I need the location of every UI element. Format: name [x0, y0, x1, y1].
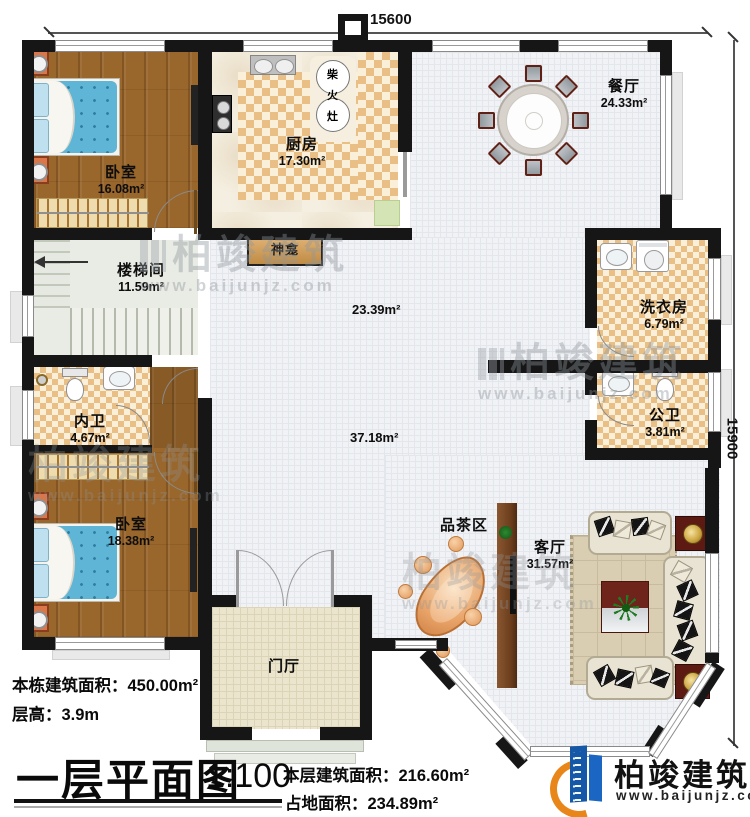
shrine-label: 神龛: [252, 243, 318, 258]
stair-direction-line: [44, 261, 88, 263]
entry-door-leaf-right: [331, 550, 334, 607]
wall-laundry-north: [585, 228, 720, 240]
wall-entry-north-e: [331, 595, 372, 607]
room-label-bedroom1: 卧室16.08m²: [86, 165, 156, 196]
wall-pbath-west-a: [585, 373, 597, 395]
room-label-kitchen: 厨房17.30m²: [266, 137, 338, 168]
cushion: [677, 620, 699, 642]
kitchen-tile-strip: [358, 52, 398, 200]
cushion: [671, 639, 694, 662]
sofa-top: [588, 511, 672, 555]
wall-laundry-west: [585, 240, 597, 328]
room-label-tea-area: 品茶区: [430, 518, 498, 535]
plant-center: [622, 604, 630, 612]
window-bedroom1-north: [55, 40, 165, 52]
building-total-area: 本栋建筑面积：450.00m²: [12, 672, 198, 696]
window-laundry-east: [708, 258, 721, 320]
toilet-bowl: [66, 378, 84, 401]
wall-pbath-west-b: [585, 420, 597, 448]
dimension-top-value: 15600: [370, 11, 412, 28]
tea-stool: [448, 536, 464, 552]
dining-chair: [572, 112, 589, 129]
room-label-public-bath: 公卫3.81m²: [630, 408, 700, 439]
sill-laundry-east: [721, 255, 732, 325]
burner-icon: [217, 101, 230, 114]
bed: [26, 78, 120, 156]
tea-stool: [398, 584, 413, 599]
floor-area: 本层建筑面积：216.60m²: [283, 762, 469, 786]
room-label-laundry: 洗衣房6.79m²: [628, 300, 700, 331]
wall-mid-stub: [488, 360, 708, 373]
sofa-bottom: [586, 656, 674, 700]
washer-panel: [639, 243, 667, 247]
cushion: [650, 668, 671, 689]
plan-scale: 1:100: [206, 757, 291, 796]
cushion: [673, 600, 694, 621]
title-underline-main: [14, 799, 282, 803]
stair-treads: [70, 308, 198, 355]
wall-entry-north-w: [200, 595, 238, 607]
chimney-flue: [345, 21, 361, 35]
window-bedroom2-south: [55, 637, 165, 650]
wall-entry-east: [360, 595, 372, 740]
dining-table: [497, 84, 569, 156]
firewood-stove-char: 灶: [327, 108, 338, 124]
wall-bedroom1-east: [198, 40, 212, 240]
toilet: [62, 368, 88, 377]
window-living-east: [705, 553, 719, 653]
entry-door-leaf-left: [236, 550, 239, 607]
floor-plan: 柴 火 灶 神龛: [0, 0, 750, 817]
door-leaf-bedroom2: [194, 450, 197, 494]
wall-innerbath-south: [22, 445, 152, 453]
room-label-bedroom2: 卧室18.38m²: [96, 517, 166, 548]
kitchen-sink: [250, 55, 296, 75]
window-dining-north-2: [558, 40, 648, 52]
window-dining-east: [660, 75, 672, 195]
sink-basin: [109, 371, 131, 387]
sill-bedroom2: [52, 650, 170, 660]
logo-tower: [589, 754, 602, 801]
tea-stool: [414, 556, 432, 574]
bath-sink: [602, 370, 634, 396]
tea-stool: [464, 608, 482, 626]
laundry-sink: [600, 243, 632, 270]
wall-entry-south-e: [320, 727, 372, 740]
sofa-right: [663, 556, 711, 668]
wardrobe-rod: [37, 466, 149, 468]
washer-drum-icon: [644, 250, 664, 270]
stair-upper-flight: [34, 240, 70, 308]
dining-chair: [478, 112, 495, 129]
dimension-line-top: [48, 32, 708, 34]
window-innerbath-west: [22, 390, 34, 440]
cushion: [613, 520, 633, 540]
room-label-inner-bath: 内卫4.67m²: [56, 414, 124, 445]
sink-basin: [608, 376, 630, 392]
logo-icon: [552, 746, 610, 808]
wall-kitchen-south: [200, 228, 412, 240]
cushion: [614, 668, 634, 688]
dining-chair: [525, 65, 542, 82]
sill-dining-east: [672, 72, 683, 200]
cushion: [593, 664, 616, 687]
footprint-area: 占地面积：234.89m²: [285, 790, 438, 814]
window-pbath-east: [708, 372, 721, 432]
window-kitchen-north: [243, 40, 333, 52]
dining-chair: [525, 159, 542, 176]
window-tea-south: [395, 640, 437, 649]
open-area-label-2: 37.18m²: [350, 430, 398, 445]
room-label-living: 客厅31.57m²: [516, 540, 584, 571]
kitchen-pass-partition: [403, 152, 407, 197]
dimension-line-right: [733, 40, 735, 746]
sink-basin: [606, 249, 628, 266]
room-label-stairwell: 楼梯间11.59m²: [104, 263, 178, 294]
cushion: [676, 579, 699, 602]
table-lamp-icon: [683, 524, 703, 544]
wall-bedroom1-south-w: [22, 228, 152, 240]
dining-table-center: [525, 112, 543, 130]
dimension-right-value: 15900: [724, 409, 741, 469]
wall-entry-south-w: [200, 727, 252, 740]
toilet-bowl: [656, 378, 674, 401]
open-area-label-1: 23.39m²: [352, 302, 400, 317]
wall-innerbath-north: [22, 355, 152, 367]
room-label-dining: 餐厅24.33m²: [588, 79, 660, 110]
floor-height: 层高：3.9m: [12, 701, 99, 725]
washing-machine: [636, 240, 669, 272]
wall-kitchen-east: [398, 52, 412, 152]
room-label-entry: 门厅: [252, 659, 316, 676]
burner-icon: [217, 117, 230, 130]
firewood-stove-char: 柴: [327, 66, 338, 82]
kitchen-door-mat: [374, 200, 400, 226]
title-underline-sub: [14, 806, 282, 808]
wall-pbath-south: [585, 448, 720, 460]
tv-bedroom1: [191, 85, 198, 145]
shower-head-icon: [36, 374, 48, 386]
wardrobe-rod: [37, 212, 149, 214]
plant-icon: [499, 526, 512, 539]
cooktop: [212, 95, 232, 133]
coffee-table: [601, 581, 649, 633]
logo-website: www.baijunjz.com: [616, 788, 750, 803]
cushion: [646, 520, 667, 541]
firewood-stove-char: 火: [327, 87, 338, 103]
sink-basin: [254, 59, 273, 74]
wardrobe: [36, 198, 148, 228]
wall-left: [22, 40, 34, 650]
logo-tower: [570, 745, 587, 802]
window-stairwell-west: [22, 295, 34, 337]
sink-basin: [275, 59, 294, 74]
wall-entry-west: [200, 595, 212, 740]
window-dining-north-1: [432, 40, 520, 52]
wardrobe: [36, 454, 148, 480]
company-logo: 柏竣建筑 www.baijunjz.com: [552, 744, 748, 810]
bath-sink: [103, 366, 135, 390]
tv-bedroom2: [190, 528, 197, 592]
door-leaf-bedroom1: [194, 190, 197, 234]
stair-arrow-icon: [34, 256, 45, 268]
